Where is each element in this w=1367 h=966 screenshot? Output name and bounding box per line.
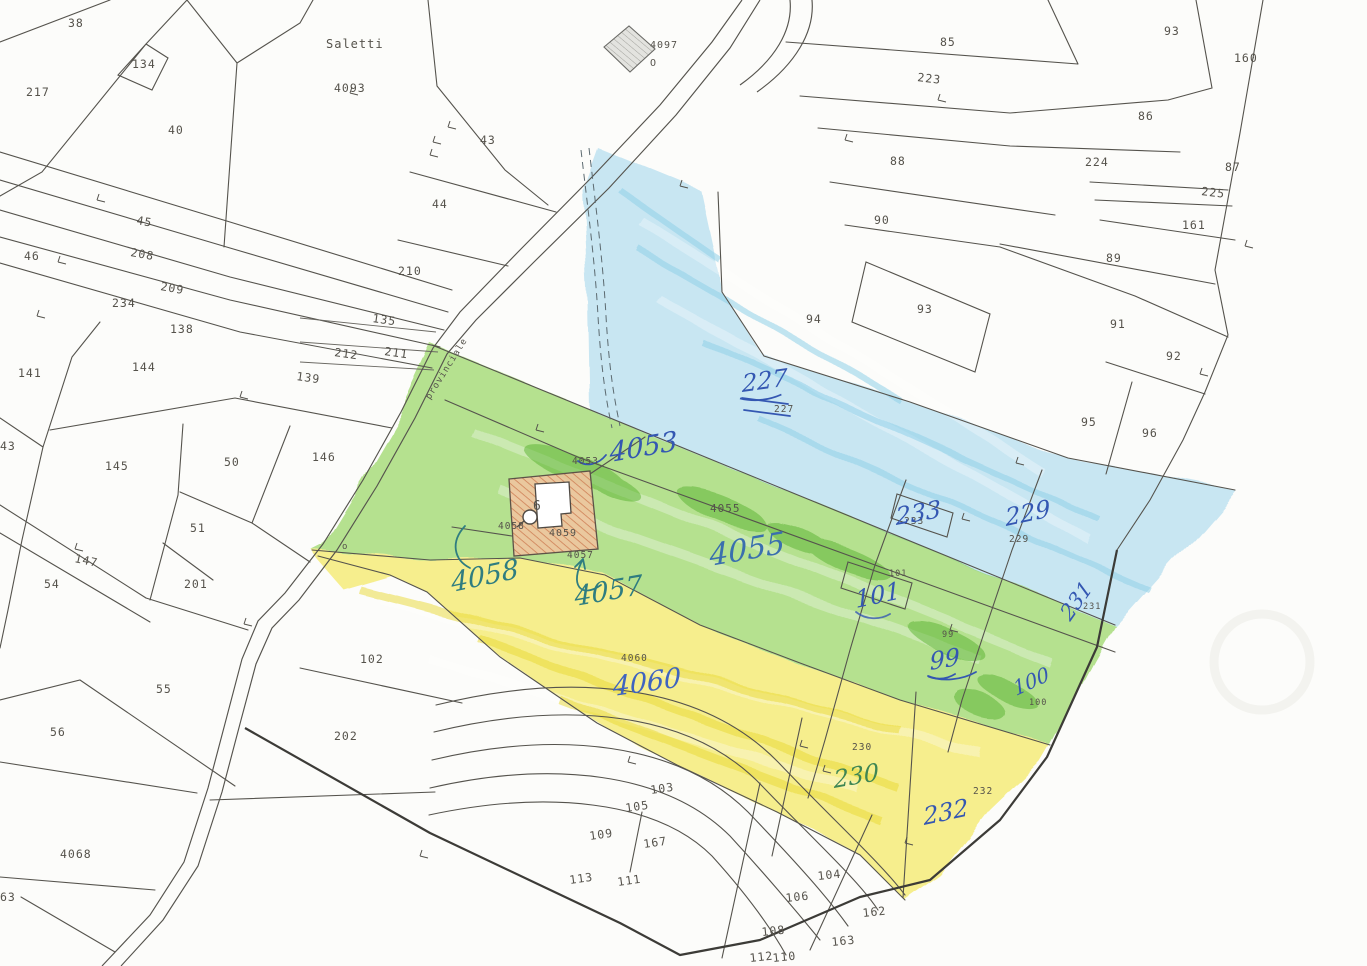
parcel-label-43: 43 (0, 439, 16, 453)
parcel-label-162: 162 (862, 904, 887, 920)
parcel-label-160: 160 (1234, 51, 1258, 65)
parcel-label-167: 167 (642, 834, 667, 851)
parcel-label-4060: 4060 (621, 653, 648, 664)
parcel-label-134: 134 (132, 57, 156, 71)
svg-text:99: 99 (929, 643, 960, 676)
parcel-label-4059: 4059 (549, 528, 577, 539)
parcel-label-86: 86 (1138, 109, 1154, 123)
parcel-label-106: 106 (785, 889, 810, 905)
parcel-label-93: 93 (1164, 24, 1180, 38)
parcel-label-230: 230 (852, 742, 872, 753)
parcel-label-202: 202 (334, 729, 358, 743)
parcel-label-225: 225 (1201, 184, 1226, 201)
crayon-zones (312, 148, 1235, 900)
parcel-label-95: 95 (1081, 415, 1097, 429)
parcel-label-45: 45 (135, 213, 153, 230)
parcel-label-223: 223 (917, 70, 942, 87)
parcel-label-208: 208 (129, 245, 155, 263)
parcel-label-4058: 4058 (498, 521, 525, 532)
parcel-label-43: 43 (480, 133, 496, 147)
parcel-label-4057: 4057 (567, 550, 594, 561)
parcel-label-145: 145 (105, 459, 129, 473)
parcel-label-211: 211 (384, 344, 409, 361)
parcel-label-94: 94 (806, 312, 822, 326)
parcel-label-4093: 4093 (334, 81, 366, 95)
parcel-label-93: 93 (917, 302, 933, 316)
parcel-label-104: 104 (817, 867, 842, 883)
cadastral-map-page: 38134217404093Saletti4097O43442104520820… (0, 0, 1367, 966)
parcel-label-O: O (650, 58, 657, 69)
parcel-label-4053: 4053 (572, 456, 599, 467)
parcel-label-112: 112 (749, 949, 774, 965)
parcel-label-212: 212 (334, 345, 359, 362)
parcel-label-141: 141 (18, 366, 42, 380)
parcel-label-100: 100 (1029, 698, 1047, 708)
parcel-label-161: 161 (1182, 218, 1206, 232)
parcel-label-209: 209 (159, 279, 185, 297)
parcel-label-113: 113 (568, 870, 593, 887)
parcel-label-96: 96 (1142, 426, 1158, 440)
parcel-label-102: 102 (360, 652, 384, 666)
parcel-label-50: 50 (224, 455, 240, 469)
parcel-label-56: 56 (50, 725, 66, 739)
parcel-label-4055: 4055 (710, 502, 741, 515)
parcel-label-227: 227 (774, 404, 794, 415)
parcel-label-38: 38 (68, 16, 84, 30)
parcel-label-105: 105 (624, 798, 649, 815)
parcel-label-51: 51 (190, 521, 206, 535)
parcel-label-99: 99 (942, 630, 954, 640)
parcel-label-90: 90 (874, 213, 890, 227)
parcel-label-92: 92 (1166, 349, 1182, 363)
parcel-label-103: 103 (649, 780, 674, 797)
parcel-label-163: 163 (831, 933, 856, 949)
parcel-label-88: 88 (890, 154, 906, 168)
parcel-label-111: 111 (616, 872, 641, 889)
parcel-label-232: 232 (973, 786, 993, 797)
parcel-label-40: 40 (168, 123, 184, 137)
parcel-label-54: 54 (44, 577, 60, 591)
parcel-label-108: 108 (761, 923, 786, 939)
parcel-label-144: 144 (132, 360, 156, 374)
parcel-label-Saletti: Saletti (326, 37, 384, 51)
parcel-label-234: 234 (112, 296, 136, 310)
parcel-label-63: 63 (0, 890, 16, 904)
parcel-label-217: 217 (26, 85, 50, 99)
parcel-label-4068: 4068 (60, 847, 92, 861)
parcel-label-210: 210 (398, 264, 422, 278)
parcel-label-46: 46 (24, 249, 40, 263)
parcel-label-91: 91 (1110, 317, 1126, 331)
parcel-label-4097: 4097 (650, 40, 678, 51)
parcel-label-44: 44 (432, 197, 448, 211)
parcel-label-147: 147 (73, 551, 99, 570)
map-canvas: 38134217404093Saletti4097O43442104520820… (0, 0, 1367, 966)
parcel-label-224: 224 (1085, 155, 1109, 169)
parcel-label-146: 146 (312, 450, 336, 464)
parcel-label-229: 229 (1009, 534, 1029, 545)
parcel-label-109: 109 (588, 826, 613, 843)
parcel-4097-building (604, 26, 655, 72)
parcel-label-55: 55 (156, 682, 172, 696)
scan-smudge (1214, 614, 1310, 710)
parcel-label-139: 139 (296, 369, 321, 386)
parcel-label-138: 138 (170, 322, 194, 336)
parcel-label-110: 110 (772, 949, 797, 965)
parcel-label-87: 87 (1225, 160, 1241, 174)
parcel-label-85: 85 (940, 35, 956, 49)
parcel-label-6: 6 (533, 499, 542, 514)
parcel-label-89: 89 (1106, 251, 1122, 265)
parcel-label-201: 201 (184, 577, 208, 591)
parcel-label-o: o (342, 542, 348, 552)
building-plot (509, 471, 598, 556)
